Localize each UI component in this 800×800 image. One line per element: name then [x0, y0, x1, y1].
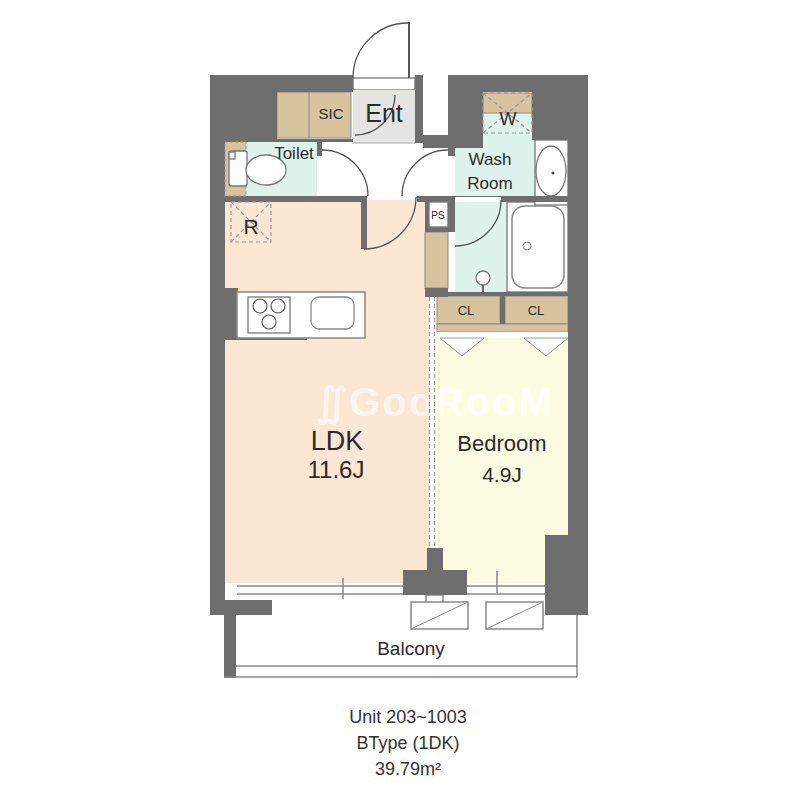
label-bedroom-size: 4.9J — [482, 463, 522, 486]
label-ps: PS — [431, 210, 445, 221]
bathtub — [512, 206, 564, 288]
toilet-flush-handle — [229, 152, 235, 159]
footer: Unit 203~1003 BType (1DK) 39.79m² — [349, 707, 467, 779]
footer-type: BType (1DK) — [356, 733, 459, 753]
label-cl-left: CL — [458, 303, 475, 318]
label-washer: W — [500, 109, 517, 129]
label-ent: Ent — [365, 99, 403, 127]
kitchen-sink — [311, 297, 354, 329]
bath-door-opening — [455, 197, 501, 202]
windows-balcony — [224, 571, 577, 677]
label-fridge: R — [243, 215, 258, 238]
closet-ledge — [437, 324, 568, 332]
ldk-door-leaf — [361, 197, 367, 249]
footer-area: 39.79m² — [375, 759, 441, 779]
label-washroom-line2: Room — [467, 174, 512, 193]
label-ldk-size: 11.6J — [308, 456, 365, 483]
vanity-sink — [536, 146, 566, 196]
shower-fixture — [476, 271, 490, 285]
entrance-threshold — [353, 78, 415, 90]
label-toilet: Toilet — [274, 144, 314, 163]
closet-door-track — [437, 332, 568, 338]
partition-duct — [425, 232, 448, 288]
label-washroom-line1: Wash — [469, 150, 512, 169]
label-cl-right: CL — [528, 303, 545, 318]
label-ldk: LDK — [311, 426, 364, 456]
label-sic: SIC — [318, 105, 343, 122]
floor-plan-page: ∬GooRooM — [0, 0, 800, 800]
footer-unit: Unit 203~1003 — [349, 707, 467, 727]
washroom-door-swing — [402, 150, 448, 196]
front-door-swing — [353, 23, 408, 78]
vanity-faucet — [552, 172, 555, 175]
toilet-door-swing — [322, 150, 368, 196]
label-balcony: Balcony — [377, 638, 445, 659]
label-bedroom: Bedroom — [457, 431, 546, 456]
floor-plan-canvas: ∬GooRooM — [0, 0, 800, 800]
